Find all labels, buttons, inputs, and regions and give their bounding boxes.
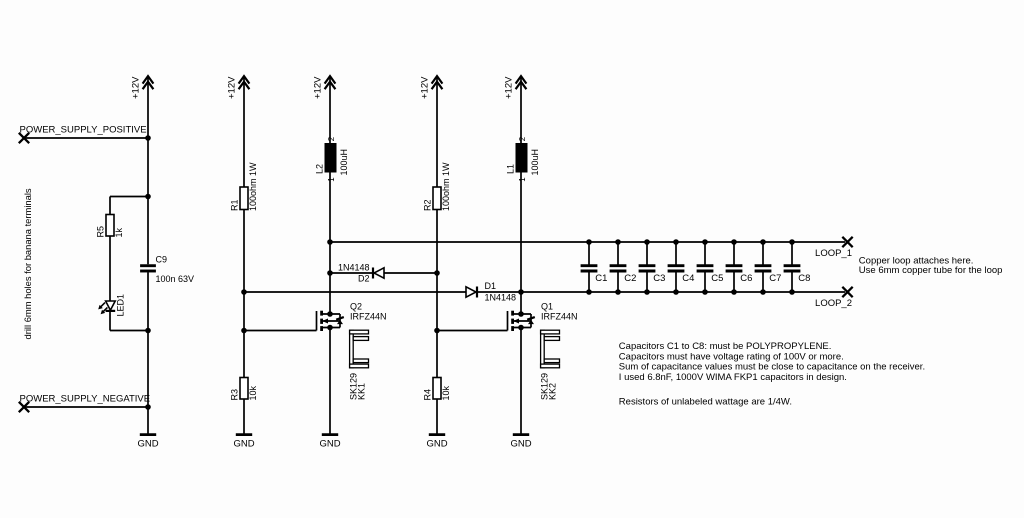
svg-text:100uH: 100uH	[530, 149, 540, 176]
svg-text:POWER_SUPPLY_POSITIVE: POWER_SUPPLY_POSITIVE	[20, 124, 147, 135]
svg-text:Q2: Q2	[350, 302, 362, 312]
svg-text:1: 1	[518, 177, 527, 182]
svg-text:C7: C7	[769, 273, 781, 284]
svg-text:C2: C2	[624, 273, 636, 284]
svg-text:Use 6mm copper tube for the lo: Use 6mm copper tube for the loop	[859, 265, 1003, 276]
svg-text:C8: C8	[798, 273, 810, 284]
svg-text:Resistors of unlabeled wattage: Resistors of unlabeled wattage are 1/4W.	[619, 397, 792, 408]
svg-text:100ohm 1W: 100ohm 1W	[248, 162, 258, 211]
svg-text:KK2: KK2	[547, 383, 557, 400]
svg-text:C6: C6	[740, 273, 752, 284]
svg-text:1: 1	[327, 177, 336, 182]
svg-text:R2: R2	[423, 199, 433, 211]
svg-text:+12V: +12V	[131, 76, 142, 99]
svg-text:IRFZ44N: IRFZ44N	[350, 311, 387, 321]
svg-text:1N4148: 1N4148	[485, 292, 517, 302]
svg-text:1N4148: 1N4148	[338, 262, 370, 272]
svg-text:2: 2	[518, 136, 527, 141]
svg-text:L1: L1	[506, 164, 516, 174]
svg-text:D2: D2	[358, 274, 370, 284]
svg-text:10k: 10k	[248, 385, 258, 400]
svg-text:+12V: +12V	[313, 76, 324, 99]
svg-text:Q1: Q1	[541, 302, 553, 312]
svg-text:100uH: 100uH	[339, 149, 349, 176]
svg-text:C4: C4	[682, 273, 694, 284]
svg-text:GND: GND	[233, 438, 254, 449]
svg-text:IRFZ44N: IRFZ44N	[541, 311, 578, 321]
svg-text:10k: 10k	[441, 385, 451, 400]
svg-text:GND: GND	[426, 438, 447, 449]
svg-text:LOOP_1: LOOP_1	[815, 248, 852, 259]
svg-text:GND: GND	[319, 438, 340, 449]
svg-text:2: 2	[327, 136, 336, 141]
svg-text:KK1: KK1	[356, 383, 366, 400]
svg-text:C1: C1	[595, 273, 607, 284]
svg-text:R1: R1	[230, 199, 240, 211]
svg-text:L2: L2	[315, 164, 325, 174]
svg-text:+12V: +12V	[420, 76, 431, 99]
svg-text:C3: C3	[653, 273, 665, 284]
svg-text:100ohm 1W: 100ohm 1W	[441, 162, 451, 211]
svg-text:LOOP_2: LOOP_2	[815, 298, 852, 309]
svg-text:C9: C9	[156, 255, 168, 265]
svg-text:100n 63V: 100n 63V	[156, 274, 195, 284]
svg-text:R5: R5	[96, 226, 106, 238]
svg-text:+12V: +12V	[504, 76, 515, 99]
svg-text:D1: D1	[485, 281, 497, 291]
svg-text:+12V: +12V	[227, 76, 238, 99]
svg-text:GND: GND	[510, 438, 531, 449]
svg-text:POWER_SUPPLY_NEGATIVE: POWER_SUPPLY_NEGATIVE	[20, 393, 151, 404]
svg-text:R3: R3	[230, 389, 240, 401]
svg-text:I used 6.8nF, 1000V WIMA FKP1: I used 6.8nF, 1000V WIMA FKP1 capacitors…	[619, 372, 847, 383]
svg-text:GND: GND	[137, 438, 158, 449]
svg-text:LED1: LED1	[116, 294, 126, 317]
svg-text:C5: C5	[711, 273, 723, 284]
svg-text:R4: R4	[423, 389, 433, 401]
svg-text:drill 6mm holes for banana ter: drill 6mm holes for banana terminals	[22, 188, 33, 339]
svg-text:1k: 1k	[114, 227, 124, 237]
